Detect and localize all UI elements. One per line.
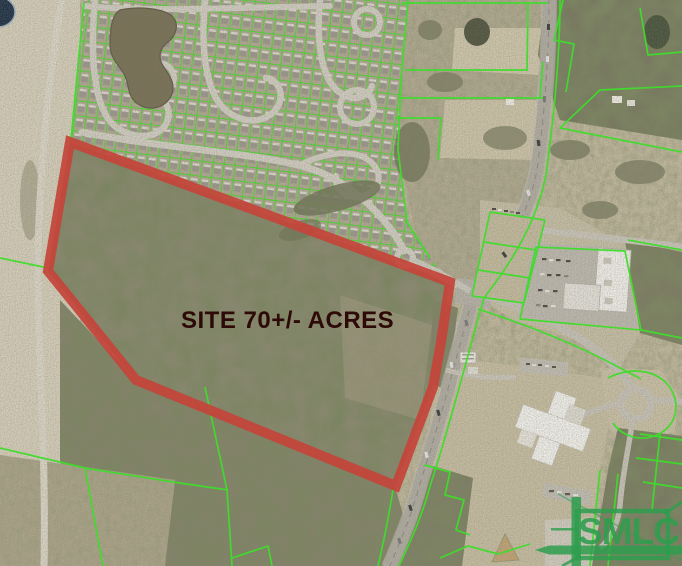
photo-grain: [0, 0, 682, 566]
logo-letters: SMLC: [578, 511, 679, 552]
aerial-photo: SITE 70+/- ACRES SMLC: [0, 0, 682, 566]
aerial-site-map: SITE 70+/- ACRES SMLC: [0, 0, 682, 566]
site-area-label: SITE 70+/- ACRES: [181, 307, 394, 334]
